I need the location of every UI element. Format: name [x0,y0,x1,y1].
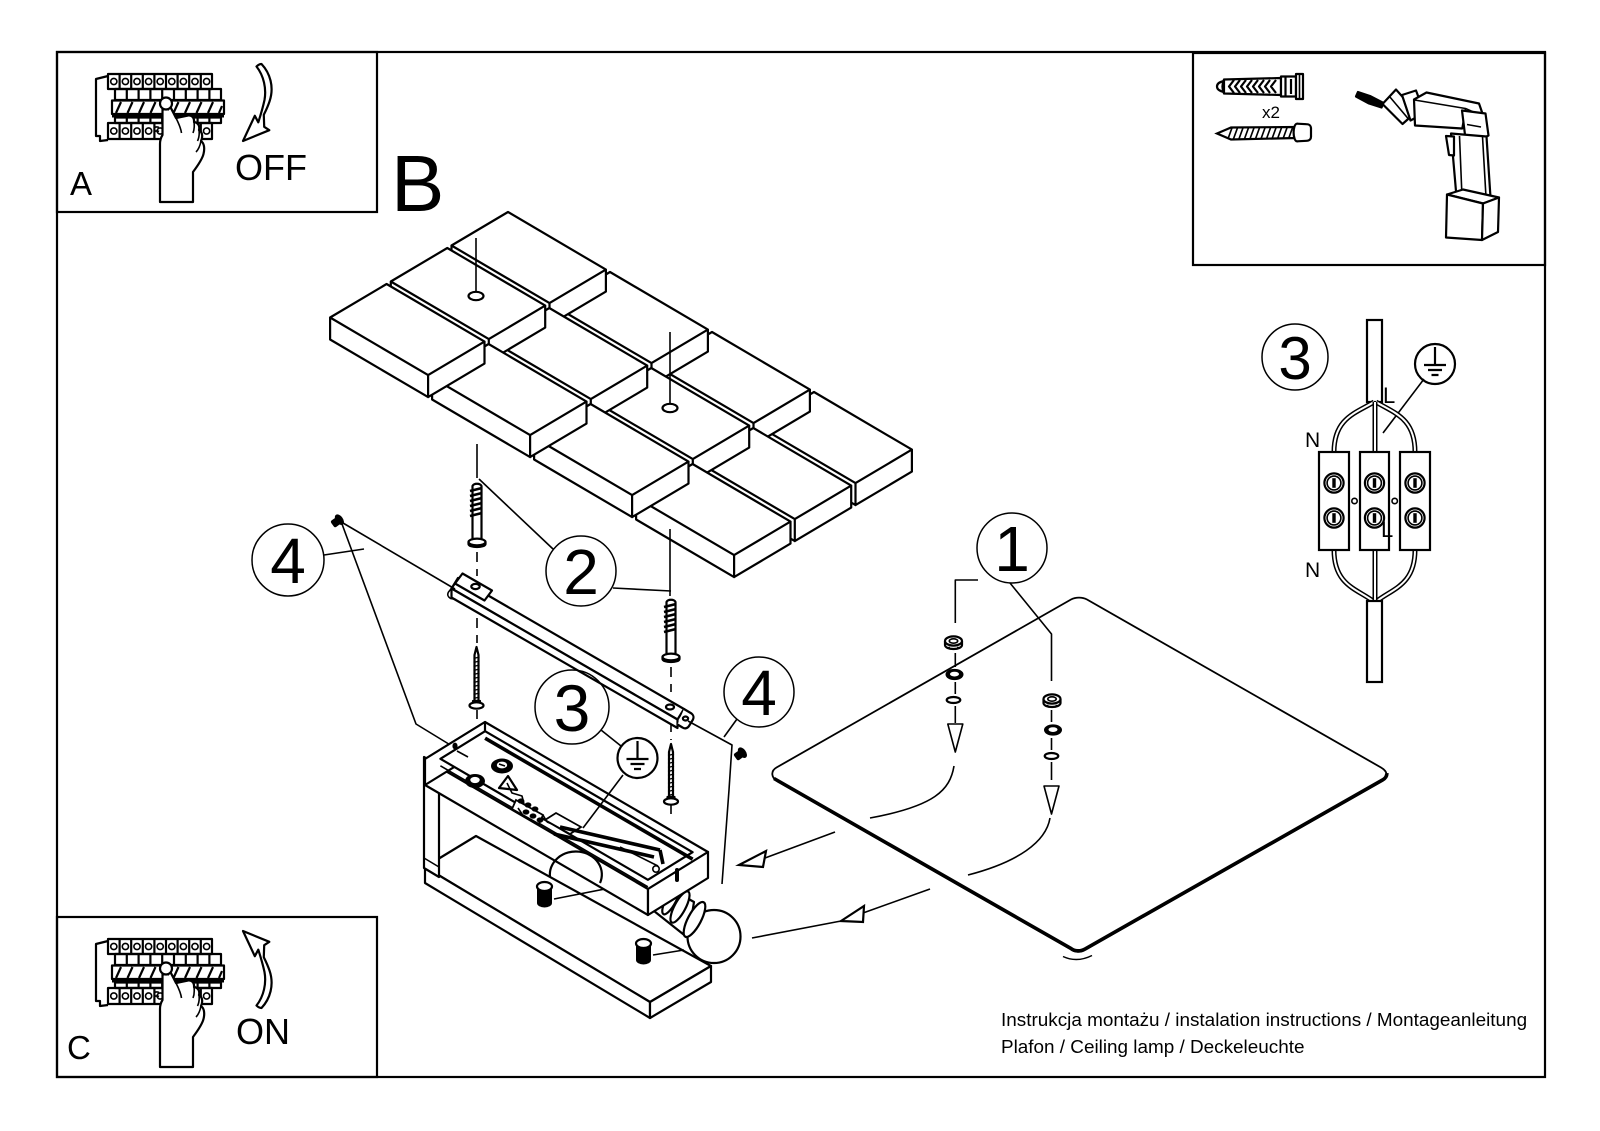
svg-text:3: 3 [554,671,591,745]
svg-text:1: 1 [994,513,1030,585]
svg-text:A: A [70,165,92,202]
svg-text:3: 3 [1278,325,1311,392]
svg-text:N: N [1305,429,1320,452]
svg-text:L: L [1381,517,1393,542]
svg-text:N: N [1305,559,1320,582]
svg-text:Instrukcja montażu / instalati: Instrukcja montażu / instalation instruc… [1001,1010,1527,1031]
svg-text:Plafon / Ceiling lamp / Deckel: Plafon / Ceiling lamp / Deckeleuchte [1001,1037,1304,1058]
svg-text:x2: x2 [1262,103,1280,122]
svg-text:C: C [67,1029,91,1066]
svg-text:4: 4 [270,525,306,597]
svg-text:B: B [391,139,444,228]
svg-text:OFF: OFF [235,147,307,188]
svg-text:2: 2 [563,536,599,608]
svg-text:4: 4 [741,657,777,729]
svg-text:ON: ON [236,1011,290,1052]
